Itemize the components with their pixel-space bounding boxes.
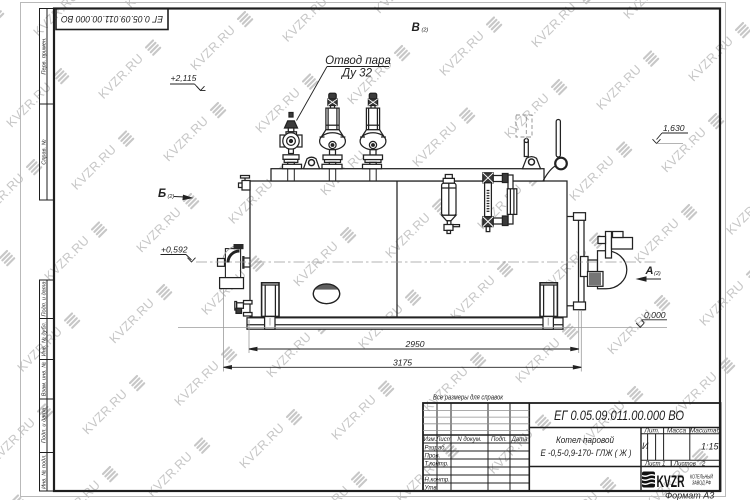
svg-text:KVZR.RU: KVZR.RU xyxy=(448,273,498,323)
svg-text:Котел паровой: Котел паровой xyxy=(556,435,615,446)
svg-text:Лит.: Лит. xyxy=(643,428,659,435)
svg-text:Перв. примен.: Перв. примен. xyxy=(41,37,47,74)
svg-text:Н.контр.: Н.контр. xyxy=(425,478,450,484)
svg-text:KVZR.RU: KVZR.RU xyxy=(0,415,38,465)
svg-text:Т.контр.: Т.контр. xyxy=(425,462,449,468)
svg-text:KVZR.RU: KVZR.RU xyxy=(188,23,238,73)
svg-text:KVZR.RU: KVZR.RU xyxy=(632,216,682,266)
svg-text:N докум.: N докум. xyxy=(457,437,481,443)
svg-text:А: А xyxy=(645,265,654,277)
svg-text:Инв. № подл.: Инв. № подл. xyxy=(41,454,47,489)
svg-text:KVZR.RU: KVZR.RU xyxy=(697,278,747,328)
svg-text:KVZR.RU: KVZR.RU xyxy=(107,296,157,346)
svg-text:1: 1 xyxy=(662,461,665,467)
svg-text:Б: Б xyxy=(158,188,166,200)
svg-text:KVZR.RU: KVZR.RU xyxy=(0,171,27,221)
svg-text:Масса: Масса xyxy=(667,428,687,435)
svg-text:KVZR.RU: KVZR.RU xyxy=(280,0,330,45)
svg-text:Масштаб: Масштаб xyxy=(690,427,721,435)
svg-text:KVZR.RU: KVZR.RU xyxy=(42,233,92,283)
svg-text:В: В xyxy=(412,22,420,34)
svg-text:(2): (2) xyxy=(168,194,175,200)
svg-text:Пров.: Пров. xyxy=(425,454,441,460)
svg-text:KVZR.RU: KVZR.RU xyxy=(69,142,119,192)
svg-text:Ду 32: Ду 32 xyxy=(340,68,373,80)
svg-text:KVZR.RU: KVZR.RU xyxy=(80,387,130,437)
svg-text:3175: 3175 xyxy=(393,357,412,367)
svg-text:KVZR.RU: KVZR.RU xyxy=(329,392,379,442)
svg-text:KVZR.RU: KVZR.RU xyxy=(567,153,617,203)
svg-text:KVZR.RU: KVZR.RU xyxy=(513,335,563,385)
svg-text:И: И xyxy=(642,441,649,451)
svg-text:Лист: Лист xyxy=(435,437,451,443)
svg-text:KVZR.RU: KVZR.RU xyxy=(437,28,487,78)
svg-text:+0,592: +0,592 xyxy=(161,245,188,255)
svg-text:Все размеры для справок: Все размеры для справок xyxy=(433,393,503,402)
svg-text:Разраб.: Разраб. xyxy=(425,446,447,452)
svg-text:KVZR.RU: KVZR.RU xyxy=(621,0,671,22)
svg-text:(2): (2) xyxy=(422,28,429,34)
svg-text:ЗАВОД РФ: ЗАВОД РФ xyxy=(692,481,711,487)
svg-text:Подп. и дата: Подп. и дата xyxy=(41,408,47,443)
svg-text:KVZR.RU: KVZR.RU xyxy=(264,330,314,380)
svg-text:1,630: 1,630 xyxy=(663,123,685,133)
svg-text:Подп. и дата: Подп. и дата xyxy=(41,281,47,316)
svg-text:КОТЕЛЬНЫЙ: КОТЕЛЬНЫЙ xyxy=(690,473,713,481)
svg-text:Инв. № дубл.: Инв. № дубл. xyxy=(41,322,47,356)
svg-text:KVZR.RU: KVZR.RU xyxy=(145,449,195,499)
svg-text:KVZR.RU: KVZR.RU xyxy=(237,421,287,471)
svg-text:Лист: Лист xyxy=(644,461,660,467)
svg-text:Утв.: Утв. xyxy=(424,486,439,492)
svg-text:KVZR.RU: KVZR.RU xyxy=(383,210,433,260)
svg-text:KVZR.RU: KVZR.RU xyxy=(724,187,750,237)
svg-text:KVZR: KVZR xyxy=(657,472,685,491)
svg-text:Дата: Дата xyxy=(511,437,528,443)
svg-text:KVZR.RU: KVZR.RU xyxy=(172,358,222,408)
svg-text:KVZR.RU: KVZR.RU xyxy=(594,62,644,112)
svg-text:KVZR.RU: KVZR.RU xyxy=(291,239,341,289)
svg-text:KVZR.RU: KVZR.RU xyxy=(96,51,146,101)
svg-text:KVZR.RU: KVZR.RU xyxy=(421,364,471,414)
svg-text:2950: 2950 xyxy=(404,339,424,349)
svg-text:ЕГ 0.05.09.011.00.000 ВО: ЕГ 0.05.09.011.00.000 ВО xyxy=(554,407,684,423)
svg-text:KVZR.RU: KVZR.RU xyxy=(502,91,552,141)
svg-text:KVZR.RU: KVZR.RU xyxy=(410,119,460,169)
svg-text:Взам. инв. №: Взам. инв. № xyxy=(41,362,47,397)
svg-text:+2,115: +2,115 xyxy=(171,73,197,83)
svg-text:Подп.: Подп. xyxy=(491,437,507,443)
svg-text:KVZR.RU: KVZR.RU xyxy=(686,34,736,84)
svg-text:Листов: Листов xyxy=(673,461,696,467)
svg-text:KVZR.RU: KVZR.RU xyxy=(161,114,211,164)
svg-text:(2): (2) xyxy=(654,271,661,277)
svg-text:Изм.: Изм. xyxy=(424,437,437,443)
svg-text:0,000: 0,000 xyxy=(644,310,666,320)
svg-text:1:15: 1:15 xyxy=(701,442,720,452)
svg-text:Е -0,5-0,9-170- ГЛЖ ( Ж ): Е -0,5-0,9-170- ГЛЖ ( Ж ) xyxy=(541,448,632,459)
svg-text:Справ. №: Справ. № xyxy=(41,139,47,164)
svg-text:KVZR.RU: KVZR.RU xyxy=(226,176,276,226)
svg-text:2: 2 xyxy=(701,461,706,467)
svg-text:Отвод пара: Отвод пара xyxy=(325,55,391,67)
svg-text:ЕГ 0.05.09.011.00.000 ВО: ЕГ 0.05.09.011.00.000 ВО xyxy=(61,13,163,24)
svg-text:Формат А3: Формат А3 xyxy=(665,491,714,500)
